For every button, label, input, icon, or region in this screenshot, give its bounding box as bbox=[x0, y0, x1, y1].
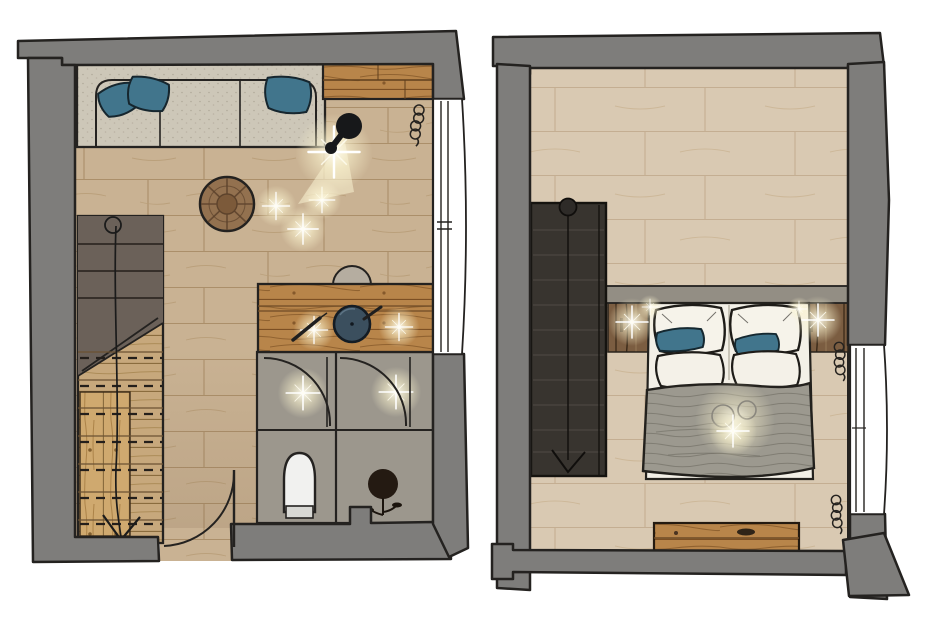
wall-bottom-right-corner bbox=[843, 533, 909, 596]
wall-light-sparkle bbox=[787, 297, 811, 321]
light-sparkle bbox=[709, 407, 757, 455]
ceiling-light-sparkle bbox=[371, 367, 421, 417]
window-left-plan bbox=[433, 99, 466, 354]
wall-left bbox=[497, 64, 530, 590]
toilet-cistern bbox=[286, 506, 313, 518]
wood-knot bbox=[737, 529, 755, 536]
desk-light-sparkle bbox=[294, 310, 335, 351]
bowl-center bbox=[350, 322, 354, 326]
lamp-head bbox=[325, 142, 337, 154]
right-plan bbox=[492, 33, 909, 599]
floor-plan-drawing bbox=[0, 0, 937, 626]
wall-light-sparkle bbox=[638, 295, 662, 319]
bathroom bbox=[257, 352, 433, 523]
bench bbox=[654, 523, 799, 553]
plant-top bbox=[368, 469, 398, 499]
double-bed bbox=[643, 303, 814, 479]
toilet bbox=[284, 453, 315, 518]
wall-top bbox=[493, 33, 884, 74]
ceiling-light-sparkle bbox=[278, 368, 328, 418]
sideboard bbox=[323, 61, 433, 99]
floor-plan-sheet bbox=[0, 0, 937, 626]
wall-right-lower bbox=[433, 354, 468, 557]
plant-leaf bbox=[392, 503, 402, 508]
accent-pillow bbox=[655, 326, 705, 353]
staircase-right bbox=[531, 199, 606, 477]
window-right-plan bbox=[850, 345, 888, 514]
stair-start-marker bbox=[560, 199, 577, 216]
round-coffee-table bbox=[200, 177, 254, 231]
wall-right-upper bbox=[848, 62, 889, 345]
wood-knot bbox=[674, 531, 678, 535]
sofa bbox=[77, 63, 325, 147]
table-center bbox=[217, 194, 237, 214]
desk-light-sparkle bbox=[379, 307, 420, 348]
left-plan bbox=[18, 31, 468, 562]
staircase-left bbox=[78, 216, 163, 543]
sofa-accent-pillow bbox=[263, 75, 313, 116]
window-glass bbox=[433, 99, 466, 354]
toilet-bowl bbox=[284, 453, 315, 512]
